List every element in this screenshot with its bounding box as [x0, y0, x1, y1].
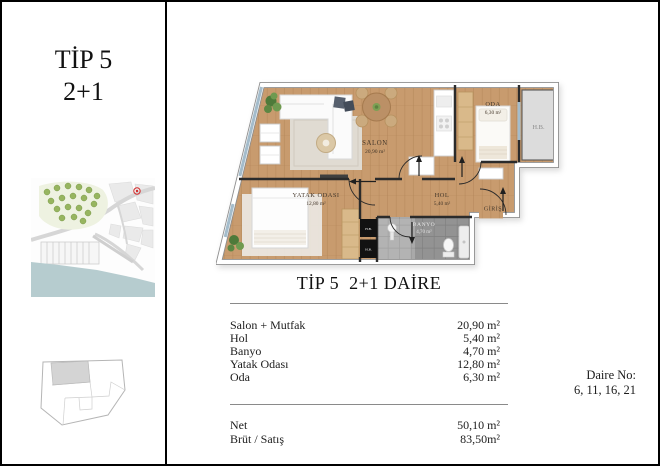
apartment-type-title: TİP 5 2+1: [2, 44, 165, 108]
wardrobe: [342, 209, 359, 259]
row-value: 6,30 m²: [463, 371, 500, 384]
room-label-salon: SALON: [362, 140, 388, 147]
table-row: Oda 6,30 m²: [230, 371, 500, 384]
room-label-banyo: BANYO: [413, 222, 435, 228]
shaft-small-label: H.B.: [365, 227, 372, 231]
separator-line-top: [230, 303, 508, 304]
row-label: Brüt / Satış: [230, 433, 284, 447]
table-row: Brüt / Satış 83,50m²: [230, 433, 500, 447]
building-footprint-diagram: [35, 352, 145, 437]
separator-line-bottom: [230, 404, 508, 405]
unit-numbers: Daire No: 6, 11, 16, 21: [574, 368, 636, 398]
panel-divider: [165, 2, 167, 464]
stove: [437, 116, 452, 131]
entry-cabinet: [479, 168, 503, 179]
row-label: Oda: [230, 371, 250, 384]
dining-set: [356, 87, 397, 127]
map-park: [39, 182, 108, 230]
entrance-label: GİRİŞ: [484, 206, 502, 213]
table-row: Salon + Mutfak 20,90 m²: [230, 319, 500, 332]
sofa-pillow: [343, 100, 355, 112]
fridge: [409, 157, 434, 175]
kitchen-sink: [437, 96, 452, 107]
unit-numbers-label: Daire No:: [574, 368, 636, 383]
table-row: Hol 5,40 m²: [230, 332, 500, 345]
totals-table: Net 50,10 m² Brüt / Satış 83,50m²: [230, 419, 500, 446]
room-area-yatak-odasi: 12,80 m²: [306, 201, 326, 207]
apartment-type-line1: TİP 5: [2, 44, 165, 76]
room-label-yatak-odasi: YATAK ODASI: [292, 192, 339, 199]
room-area-hol: 5,40 m²: [434, 201, 451, 207]
wardrobe: [458, 92, 473, 150]
room-area-banyo: 4,70 m²: [416, 229, 432, 235]
room-area-salon: 20,90 m²: [365, 149, 385, 155]
row-label: Net: [230, 419, 247, 433]
row-value: 83,50m²: [460, 433, 500, 447]
apartment-type-line2: 2+1: [2, 76, 165, 108]
table-row: Yatak Odası 12,80 m²: [230, 358, 500, 371]
row-value: 50,10 m²: [457, 419, 500, 433]
room-label-hol: HOL: [435, 192, 450, 199]
room-area-oda: 6,30 m²: [485, 110, 502, 116]
room-label-oda: ODA: [485, 101, 500, 108]
table-row: Net 50,10 m²: [230, 419, 500, 433]
unit-numbers-values: 6, 11, 16, 21: [574, 383, 636, 398]
footprint-unit-highlight: [51, 361, 90, 385]
area-table: Salon + Mutfak 20,90 m² Hol 5,40 m² Bany…: [230, 319, 500, 384]
shaft-small-label: H.B.: [365, 247, 372, 251]
unit-heading: TİP 5 2+1 DAİRE: [230, 273, 508, 294]
toilet: [443, 239, 454, 258]
shaft-label: H.B.: [532, 124, 545, 131]
brochure-page: TİP 5 2+1: [0, 0, 660, 466]
floor-plan: H.B. H.B. SALON 20,90 m²: [216, 76, 564, 268]
site-location-map: [31, 178, 155, 297]
